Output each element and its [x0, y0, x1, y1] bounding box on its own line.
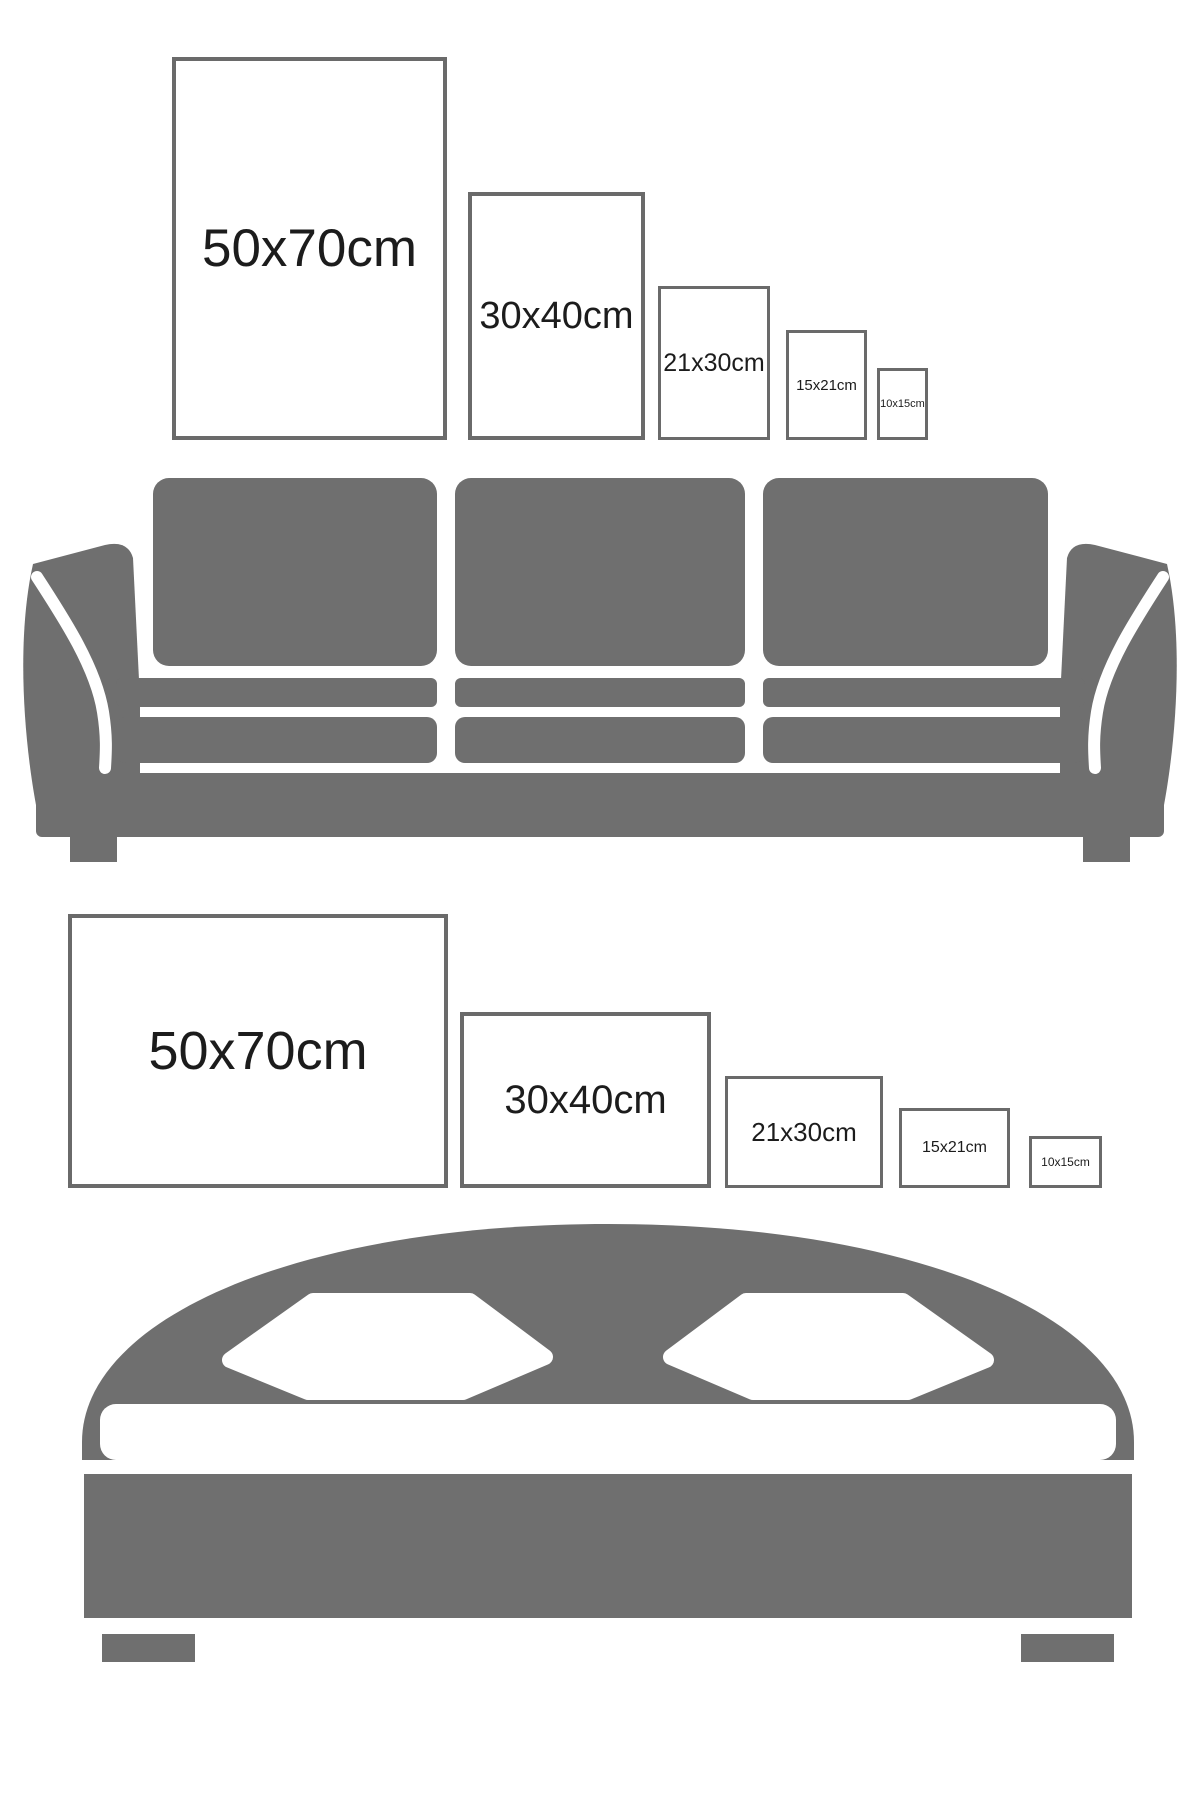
frame-portrait-50x70: 50x70cm [172, 57, 447, 440]
frame-portrait-30x40: 30x40cm [468, 192, 645, 440]
bed-left-leg [102, 1634, 195, 1662]
sofa-seat-cushion-right [763, 717, 1085, 763]
frame-size-label: 15x21cm [922, 1140, 987, 1156]
bed-right-leg [1021, 1634, 1114, 1662]
bed-icon [0, 1215, 1200, 1675]
frame-size-label: 30x40cm [479, 297, 633, 335]
sofa-deck-middle [455, 678, 745, 707]
sofa-deck-left [116, 678, 437, 707]
sofa-deck-right [763, 678, 1085, 707]
sofa-back-cushion-right [763, 478, 1048, 666]
frame-landscape-15x21: 15x21cm [899, 1108, 1010, 1188]
frame-size-label: 21x30cm [751, 1119, 857, 1145]
sofa-back-cushion-left [153, 478, 437, 666]
bed-base [84, 1474, 1132, 1618]
sofa-icon [0, 470, 1200, 870]
frame-size-label: 21x30cm [663, 351, 764, 376]
sofa-seat-cushion-left [116, 717, 437, 763]
sofa-back-cushion-middle [455, 478, 745, 666]
frame-portrait-15x21: 15x21cm [786, 330, 867, 440]
frame-landscape-10x15: 10x15cm [1029, 1136, 1102, 1188]
frame-size-label: 15x21cm [796, 378, 857, 393]
frame-size-label: 30x40cm [504, 1080, 666, 1120]
frame-size-label: 10x15cm [1041, 1156, 1090, 1168]
bed-mattress [100, 1404, 1116, 1460]
sofa-base [36, 773, 1164, 837]
sofa-right-leg [1083, 836, 1130, 862]
frame-landscape-50x70: 50x70cm [68, 914, 448, 1188]
sofa-left-leg [70, 836, 117, 862]
frame-landscape-21x30: 21x30cm [725, 1076, 883, 1188]
size-guide-infographic: { "colors": { "furniture": "#6f6f6f", "f… [0, 0, 1200, 1800]
frame-size-label: 50x70cm [202, 222, 417, 275]
sofa-seat-cushion-middle [455, 717, 745, 763]
frame-size-label: 50x70cm [148, 1024, 367, 1078]
frame-landscape-30x40: 30x40cm [460, 1012, 711, 1188]
frame-size-label: 10x15cm [880, 399, 925, 410]
frame-portrait-10x15: 10x15cm [877, 368, 928, 440]
frame-portrait-21x30: 21x30cm [658, 286, 770, 440]
